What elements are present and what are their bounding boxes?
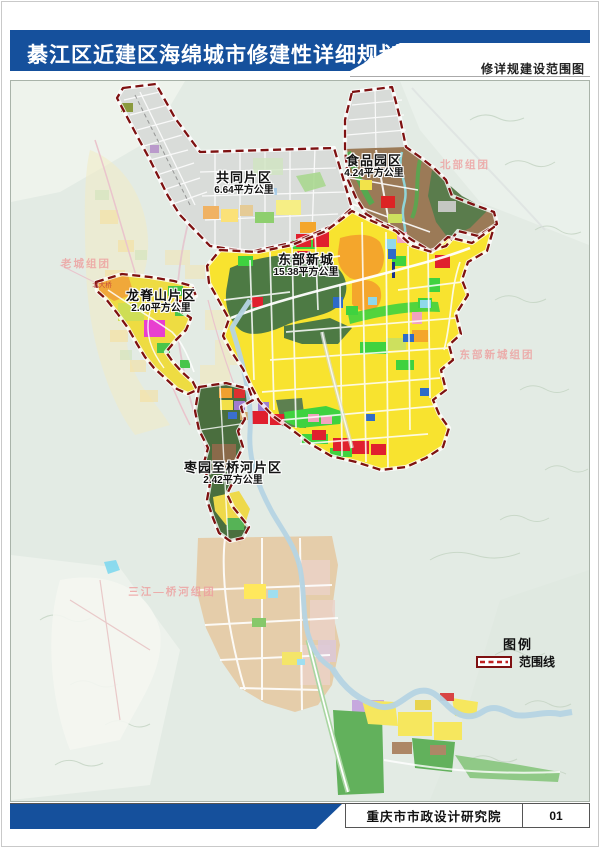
map-canvas [11, 81, 589, 801]
district-area: 2.40平方公里 [126, 303, 196, 316]
page-subtitle: 修详规建设范围图 [481, 60, 585, 77]
group-label-sanjiang: 三江—桥河组团 [128, 584, 216, 599]
footer-blue-bar [10, 804, 342, 829]
district-name: 枣园至桥河片区 [184, 461, 282, 475]
district-area: 4.24平方公里 [344, 168, 403, 181]
bridge-label-beidaqiao: 北大桥 [92, 279, 112, 289]
footer: 重庆市市政设计研究院 01 [10, 804, 590, 829]
district-area: 15.38平方公里 [273, 267, 338, 280]
group-label-laocheng: 老城组团 [61, 256, 111, 271]
footer-box: 重庆市市政设计研究院 01 [345, 803, 590, 828]
legend-label: 范围线 [519, 653, 555, 670]
district-label-gongtong: 共同片区 6.64平方公里 [214, 171, 273, 198]
district-label-shipin: 食品园区 4.24平方公里 [344, 154, 403, 181]
district-label-zaoyuan: 枣园至桥河片区 2.42平方公里 [184, 461, 282, 488]
legend-item-boundary: 范围线 [476, 653, 555, 670]
district-label-longjishan: 龙脊山片区 2.40平方公里 [126, 289, 196, 316]
boundary-line-symbol [476, 656, 512, 668]
group-label-dongbuxincheng: 东部新城组团 [460, 347, 535, 362]
district-name: 食品园区 [344, 154, 403, 168]
planning-map [10, 80, 590, 802]
legend-title: 图例 [503, 634, 533, 653]
district-name: 东部新城 [273, 253, 338, 267]
district-name: 龙脊山片区 [126, 289, 196, 303]
district-label-dongbu: 东部新城 15.38平方公里 [273, 253, 338, 280]
header-rule [350, 76, 590, 77]
district-name: 共同片区 [214, 171, 273, 185]
page-title: 綦江区近建区海绵城市修建性详细规划 [27, 39, 401, 69]
group-label-beibu: 北部组团 [440, 157, 490, 172]
district-area: 6.64平方公里 [214, 185, 273, 198]
footer-organization: 重庆市市政设计研究院 [346, 804, 522, 827]
footer-page-number: 01 [522, 804, 589, 827]
district-area: 2.42平方公里 [184, 475, 282, 488]
